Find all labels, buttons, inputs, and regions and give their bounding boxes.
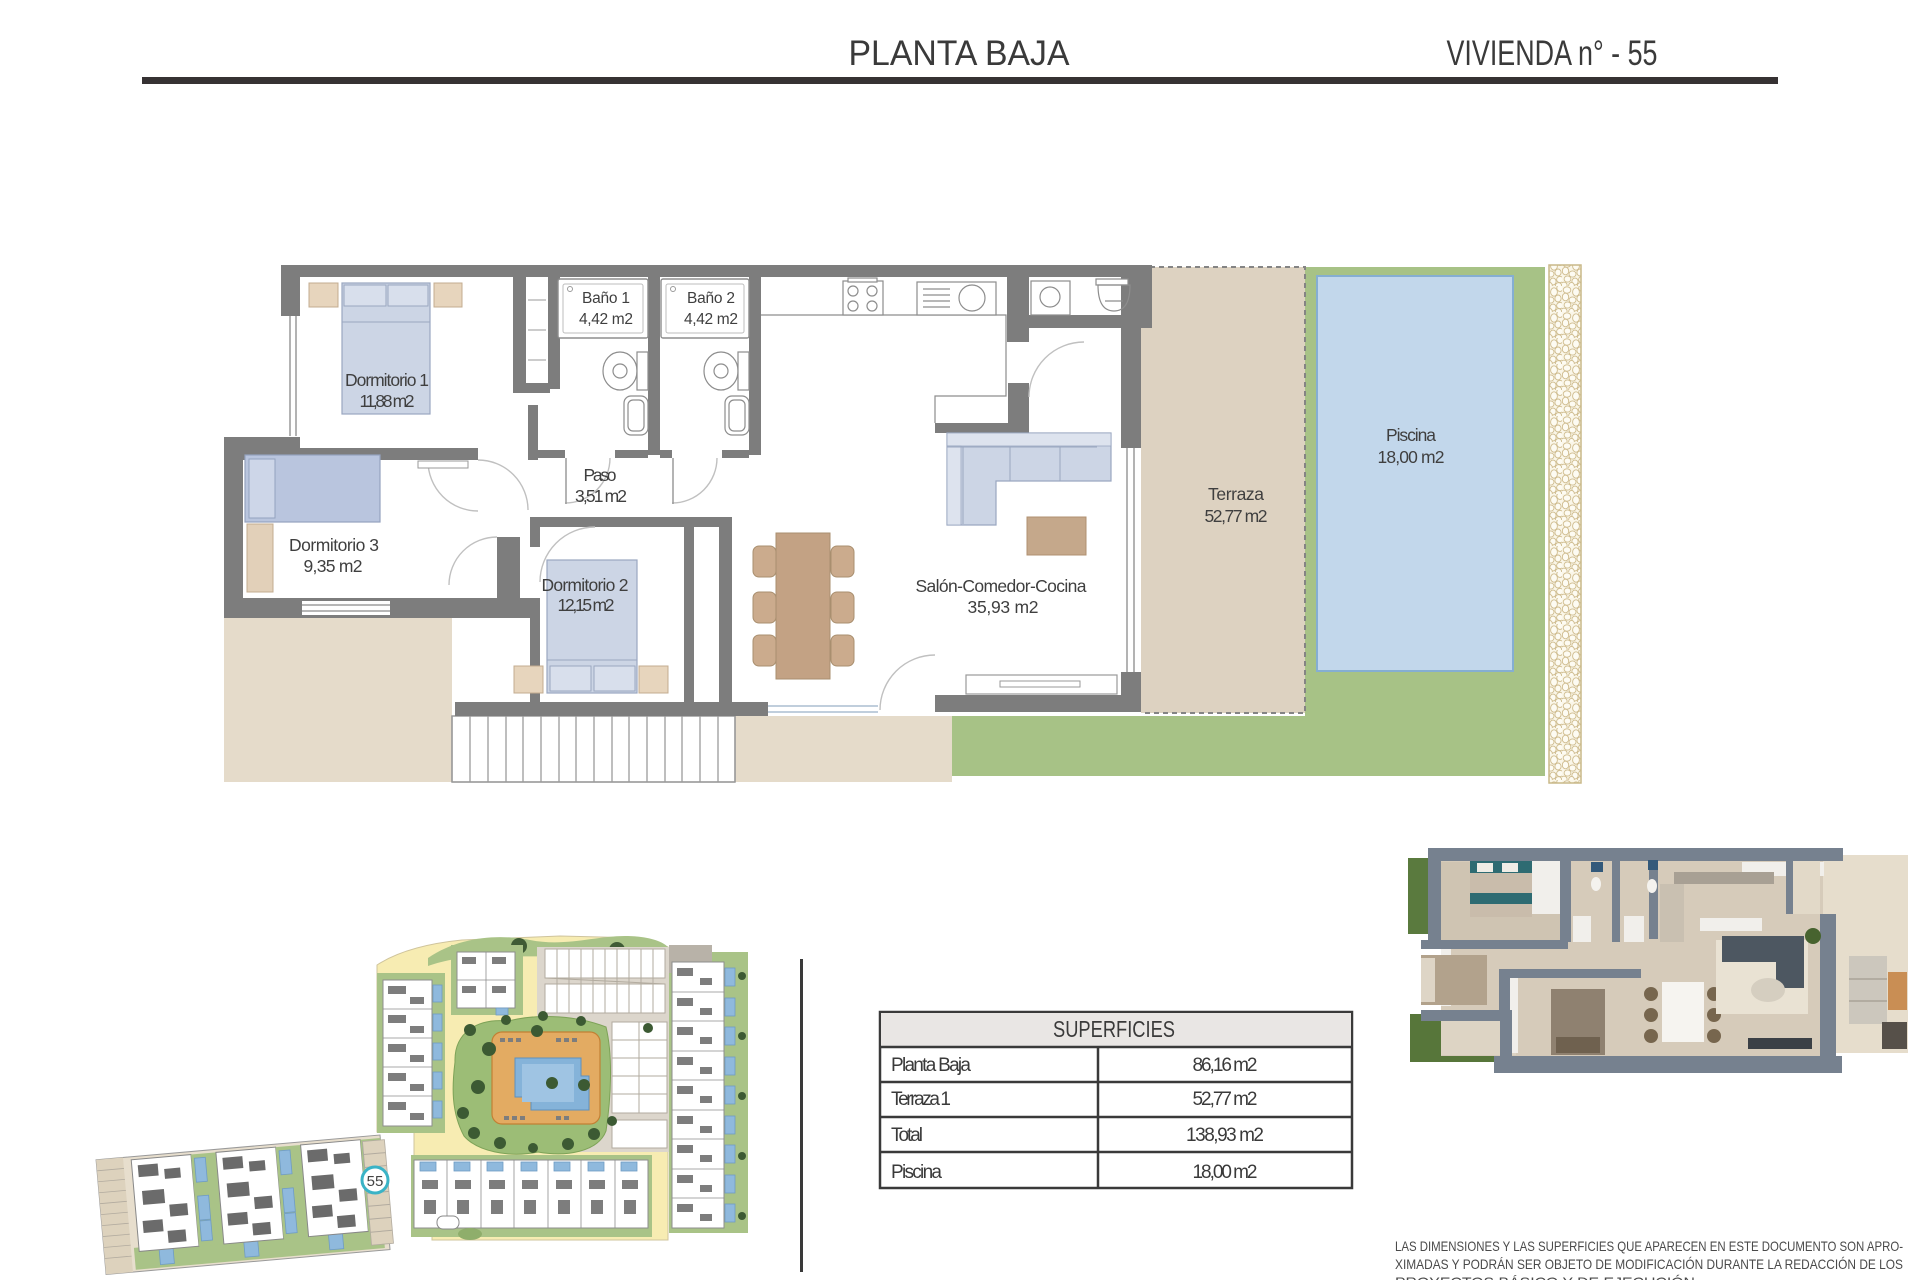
svg-text:SUPERFICIES: SUPERFICIES [1053, 1016, 1175, 1042]
svg-text:PROYECTOS BÁSICO Y DE EJECUCIÓ: PROYECTOS BÁSICO Y DE EJECUCIÓN [1395, 1274, 1695, 1280]
svg-text:VIVIENDA n° - 55: VIVIENDA n° - 55 [1447, 34, 1658, 73]
svg-text:9,35 m2: 9,35 m2 [304, 556, 363, 576]
svg-text:Dormitorio 3: Dormitorio 3 [289, 535, 379, 555]
svg-text:18,00 m2: 18,00 m2 [1193, 1162, 1258, 1183]
svg-text:Salón-Comedor-Cocina: Salón-Comedor-Cocina [916, 576, 1087, 596]
svg-text:Planta Baja: Planta Baja [891, 1055, 971, 1076]
svg-text:86,16 m2: 86,16 m2 [1193, 1055, 1258, 1076]
svg-text:Dormitorio 2: Dormitorio 2 [542, 575, 629, 595]
svg-text:Terraza: Terraza [1208, 484, 1264, 504]
svg-text:4,42 m2: 4,42 m2 [579, 311, 633, 328]
svg-text:Paso: Paso [584, 465, 617, 485]
svg-text:52,77 m2: 52,77 m2 [1193, 1089, 1258, 1110]
svg-text:52,77 m2: 52,77 m2 [1205, 506, 1268, 526]
svg-text:18,00 m2: 18,00 m2 [1378, 447, 1445, 467]
svg-text:Dormitorio 1: Dormitorio 1 [345, 370, 429, 390]
svg-text:LAS DIMENSIONES Y LAS SUPERFIC: LAS DIMENSIONES Y LAS SUPERFICIES QUE AP… [1395, 1238, 1903, 1254]
svg-text:Terraza 1: Terraza 1 [891, 1089, 951, 1110]
svg-text:Baño 1: Baño 1 [582, 290, 630, 307]
svg-text:Baño 2: Baño 2 [687, 290, 735, 307]
svg-text:138,93 m2: 138,93 m2 [1186, 1125, 1264, 1146]
svg-text:3,51 m2: 3,51 m2 [575, 486, 627, 506]
svg-text:XIMADAS Y PODRÁN SER OBJETO DE: XIMADAS Y PODRÁN SER OBJETO DE MODIFICAC… [1395, 1256, 1903, 1272]
svg-text:11,88 m2: 11,88 m2 [360, 391, 415, 411]
svg-text:Piscina: Piscina [891, 1162, 942, 1183]
svg-text:PLANTA BAJA: PLANTA BAJA [849, 34, 1071, 73]
svg-text:35,93 m2: 35,93 m2 [968, 597, 1039, 617]
svg-text:4,42 m2: 4,42 m2 [684, 311, 738, 328]
svg-text:Total: Total [891, 1125, 923, 1146]
svg-text:55: 55 [367, 1173, 384, 1190]
svg-text:Piscina: Piscina [1386, 425, 1436, 445]
svg-text:12,15 m2: 12,15 m2 [558, 595, 615, 615]
